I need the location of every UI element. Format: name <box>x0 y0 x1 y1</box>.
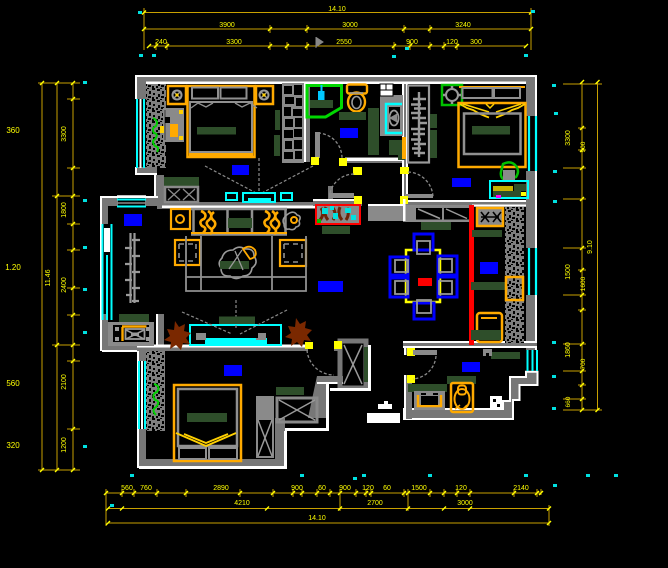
svg-text:3300: 3300 <box>61 126 68 142</box>
svg-text:60: 60 <box>318 485 326 492</box>
svg-text:3000: 3000 <box>342 22 358 29</box>
svg-text:900: 900 <box>580 141 587 152</box>
svg-text:700: 700 <box>580 358 587 369</box>
svg-text:300: 300 <box>470 39 482 46</box>
svg-text:120: 120 <box>362 485 374 492</box>
svg-text:900: 900 <box>406 39 418 46</box>
svg-text:14.10: 14.10 <box>328 6 346 13</box>
svg-text:3000: 3000 <box>457 500 473 507</box>
svg-text:2890: 2890 <box>213 485 229 492</box>
svg-text:660: 660 <box>565 396 572 407</box>
svg-text:2400: 2400 <box>61 277 68 293</box>
svg-text:360: 360 <box>6 126 20 135</box>
svg-text:560: 560 <box>6 379 20 388</box>
svg-text:1500: 1500 <box>411 485 427 492</box>
svg-text:1600: 1600 <box>580 276 587 291</box>
svg-text:900: 900 <box>339 485 351 492</box>
svg-text:2140: 2140 <box>513 485 529 492</box>
svg-text:4210: 4210 <box>234 500 250 507</box>
svg-text:1.20: 1.20 <box>5 263 21 272</box>
svg-text:320: 320 <box>6 441 20 450</box>
svg-text:60: 60 <box>383 485 391 492</box>
svg-text:1860: 1860 <box>565 342 572 358</box>
svg-text:760: 760 <box>140 485 152 492</box>
svg-text:1800: 1800 <box>61 202 68 218</box>
svg-text:2700: 2700 <box>367 500 383 507</box>
svg-text:3900: 3900 <box>219 22 235 29</box>
svg-text:120: 120 <box>455 485 467 492</box>
svg-text:2100: 2100 <box>61 374 68 390</box>
svg-text:120: 120 <box>446 39 458 46</box>
svg-text:240: 240 <box>155 39 167 46</box>
svg-text:2550: 2550 <box>336 39 352 46</box>
svg-text:9.10: 9.10 <box>587 240 594 254</box>
svg-text:900: 900 <box>291 485 303 492</box>
svg-text:3240: 3240 <box>455 22 471 29</box>
svg-text:14.10: 14.10 <box>308 515 326 522</box>
svg-text:1200: 1200 <box>61 437 68 453</box>
svg-text:3300: 3300 <box>565 130 572 146</box>
svg-text:11.46: 11.46 <box>45 269 52 286</box>
svg-text:1500: 1500 <box>565 264 572 280</box>
svg-text:560: 560 <box>121 485 133 492</box>
svg-text:3300: 3300 <box>226 39 242 46</box>
